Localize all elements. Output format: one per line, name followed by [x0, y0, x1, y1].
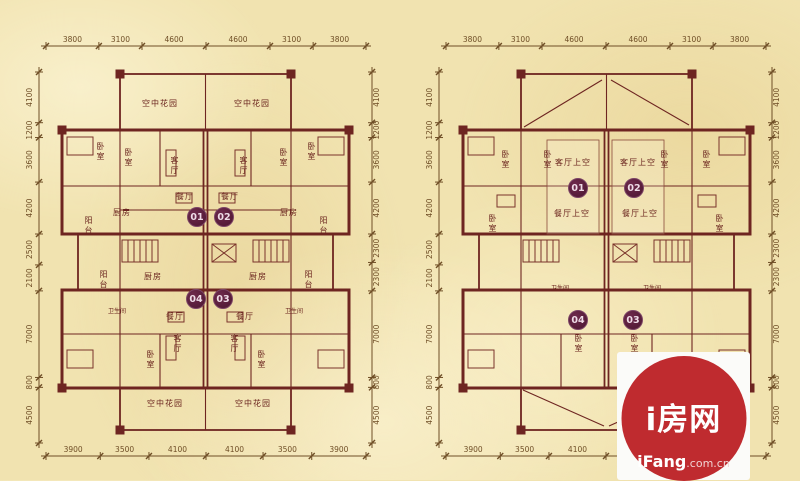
dim-label: 1200 — [772, 120, 781, 139]
dim-label: 3600 — [772, 150, 781, 169]
right-plan-furniture — [468, 137, 745, 368]
dim-label: 3600 — [425, 150, 434, 169]
watermark-logo-circle: i房网 iFang.com.cn — [621, 356, 746, 481]
floorplan-page: { "colors": { "background": "#f1e3b0", "… — [0, 0, 800, 480]
dim-label: 7000 — [425, 324, 434, 343]
dim-label: 800 — [25, 375, 34, 390]
dim-label: 3500 — [115, 445, 134, 454]
room-label-bedroom: 卧室 — [146, 350, 154, 370]
unit-badge-02: 02 — [214, 207, 234, 227]
room-label-dining-void: 餐厅上空 — [554, 210, 590, 218]
left-plan-furniture — [67, 137, 344, 368]
dim-label: 4100 — [372, 88, 381, 107]
dim-label: 4200 — [372, 198, 381, 217]
room-label-bedroom: 卧室 — [307, 142, 315, 162]
right-plan-elevator-icon — [613, 244, 637, 262]
dim-label: 3100 — [682, 35, 701, 44]
room-label-bedroom: 卧室 — [124, 148, 132, 168]
watermark-site: iFang.com.cn — [621, 452, 746, 471]
room-label-bedroom: 卧室 — [96, 142, 104, 162]
dim-label: 3800 — [730, 35, 749, 44]
unit-badge-02: 02 — [624, 178, 644, 198]
room-label-bedroom: 卧室 — [501, 150, 509, 170]
room-label-bath: 卫生间 — [643, 286, 661, 292]
dim-label: 4100 — [772, 88, 781, 107]
room-label-balcony: 阳台 — [99, 270, 107, 290]
dim-label: 4500 — [772, 405, 781, 424]
dim-label: 3100 — [282, 35, 301, 44]
dim-label: 4200 — [25, 198, 34, 217]
dim-label: 3100 — [511, 35, 530, 44]
left-plan-stairs-icon — [122, 240, 289, 262]
room-label-dining: 餐厅 — [166, 313, 184, 321]
dim-label: 7000 — [372, 324, 381, 343]
dim-label: 800 — [372, 375, 381, 390]
room-label-balcony: 阳台 — [304, 270, 312, 290]
room-label-bedroom: 卧室 — [702, 150, 710, 170]
dim-label: 4600 — [164, 35, 183, 44]
unit-badge-03: 03 — [213, 289, 233, 309]
room-label-sky-garden: 空中花园 — [147, 400, 183, 408]
dim-label: 3600 — [25, 150, 34, 169]
room-label-bedroom: 卧室 — [630, 334, 638, 354]
unit-badge-04: 04 — [186, 289, 206, 309]
dim-label: 2300 — [372, 267, 381, 286]
room-label-bedroom: 卧室 — [279, 148, 287, 168]
room-label-kitchen: 厨房 — [280, 209, 298, 217]
dim-label: 3800 — [463, 35, 482, 44]
room-label-living-void: 客厅上空 — [555, 159, 591, 167]
dim-label: 3500 — [278, 445, 297, 454]
dim-label: 800 — [425, 375, 434, 390]
dim-label: 4100 — [425, 88, 434, 107]
room-label-bedroom: 卧室 — [574, 334, 582, 354]
room-label-living: 客厅 — [230, 334, 238, 354]
dim-label: 4600 — [228, 35, 247, 44]
watermark-site-domain: .com.cn — [686, 457, 730, 470]
dim-label: 4600 — [628, 35, 647, 44]
dim-label: 3800 — [63, 35, 82, 44]
dim-label: 3500 — [515, 445, 534, 454]
room-label-sky-garden: 空中花园 — [234, 100, 270, 108]
unit-badge-01: 01 — [568, 178, 588, 198]
dim-label: 3100 — [111, 35, 130, 44]
dim-label: 1200 — [425, 120, 434, 139]
dim-label: 2500 — [25, 240, 34, 259]
room-label-bedroom: 卧室 — [715, 214, 723, 234]
room-label-kitchen: 厨房 — [249, 273, 267, 281]
dim-label: 2300 — [372, 238, 381, 257]
dim-label: 3900 — [64, 445, 83, 454]
dim-label: 4500 — [425, 405, 434, 424]
dim-label: 4500 — [25, 405, 34, 424]
dim-label: 3800 — [330, 35, 349, 44]
room-label-kitchen: 厨房 — [144, 273, 162, 281]
room-label-bedroom: 卧室 — [543, 150, 551, 170]
room-label-bath: 卫生间 — [285, 309, 303, 315]
room-label-dining: 餐厅 — [236, 313, 254, 321]
room-label-bedroom: 卧室 — [660, 150, 668, 170]
dim-label: 2100 — [25, 268, 34, 287]
dim-label: 4500 — [372, 405, 381, 424]
dim-label: 4200 — [425, 198, 434, 217]
room-label-dining-void: 餐厅上空 — [622, 210, 658, 218]
dim-label: 1200 — [25, 120, 34, 139]
room-label-living: 客厅 — [239, 156, 247, 176]
room-label-bedroom: 卧室 — [257, 350, 265, 370]
watermark: i房网 iFang.com.cn — [617, 352, 750, 480]
dim-label: 4600 — [564, 35, 583, 44]
dim-label: 7000 — [25, 324, 34, 343]
unit-badge-04: 04 — [568, 310, 588, 330]
room-label-bath: 卫生间 — [108, 309, 126, 315]
room-label-living: 客厅 — [170, 156, 178, 176]
room-label-sky-garden: 空中花园 — [142, 100, 178, 108]
room-label-bedroom: 卧室 — [488, 214, 496, 234]
dim-label: 2500 — [425, 240, 434, 259]
dim-label: 2300 — [772, 267, 781, 286]
room-label-living-void: 客厅上空 — [620, 159, 656, 167]
dim-label: 4200 — [772, 198, 781, 217]
room-label-balcony: 阳台 — [84, 216, 92, 236]
room-label-kitchen: 厨房 — [113, 209, 131, 217]
room-label-dining: 餐厅 — [221, 193, 239, 201]
dim-label: 7000 — [772, 324, 781, 343]
room-label-living: 客厅 — [173, 334, 181, 354]
dim-label: 4100 — [25, 88, 34, 107]
dim-label: 3900 — [464, 445, 483, 454]
dim-label: 3900 — [329, 445, 348, 454]
left-plan-elevator-icon — [212, 244, 236, 262]
room-label-balcony: 阳台 — [319, 216, 327, 236]
room-label-bath: 卫生间 — [551, 286, 569, 292]
dim-label: 3600 — [372, 150, 381, 169]
room-label-dining: 餐厅 — [176, 193, 194, 201]
unit-badge-01: 01 — [187, 207, 207, 227]
room-label-sky-garden: 空中花园 — [235, 400, 271, 408]
dim-label: 2100 — [425, 268, 434, 287]
dim-label: 4100 — [568, 445, 587, 454]
right-plan-stairs-icon — [523, 240, 690, 262]
left-plan-walls — [58, 70, 354, 435]
dim-label: 2300 — [772, 238, 781, 257]
watermark-site-name: iFang — [637, 452, 686, 471]
watermark-brand: i房网 — [646, 394, 722, 439]
dim-label: 4100 — [168, 445, 187, 454]
dim-label: 800 — [772, 375, 781, 390]
dim-label: 4100 — [225, 445, 244, 454]
dim-label: 1200 — [372, 120, 381, 139]
unit-badge-03: 03 — [623, 310, 643, 330]
